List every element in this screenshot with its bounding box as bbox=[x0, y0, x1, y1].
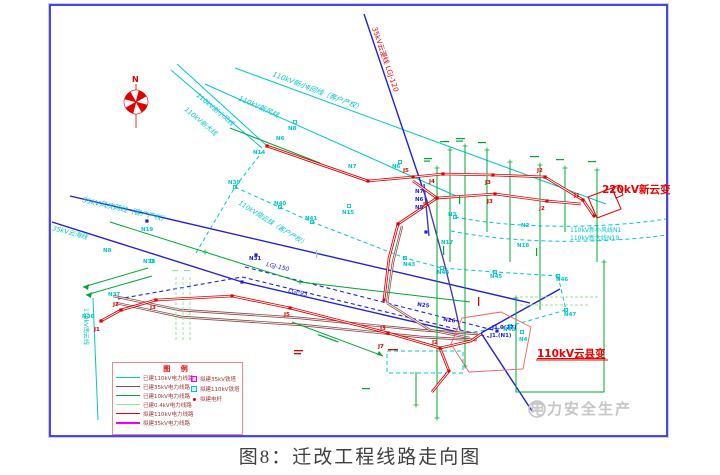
map-label: N6 bbox=[276, 136, 285, 142]
map-label: N40 bbox=[274, 201, 286, 207]
legend-symbol-row: 拟建110kV铁塔 bbox=[190, 384, 239, 394]
legend-symbol-label: 拟建35kV铁塔 bbox=[200, 375, 236, 383]
legend-line-swatch bbox=[116, 413, 140, 414]
map-label: J2 bbox=[112, 302, 119, 308]
map-label: J1 bbox=[93, 327, 100, 333]
tower-marker-sq-red bbox=[288, 306, 291, 309]
legend-symbol-square bbox=[191, 376, 197, 382]
tower-marker-sq-red bbox=[386, 331, 389, 334]
map-label: N46 bbox=[556, 277, 568, 283]
legend-line-label: 拟建35kV电力线路 bbox=[143, 419, 190, 427]
map-label: N14 bbox=[253, 150, 265, 156]
map-label: N48 bbox=[503, 327, 515, 333]
legend-line-row: 已建0.4kV电力线路 bbox=[116, 400, 190, 409]
legend-line-swatch bbox=[116, 377, 140, 378]
map-label: N7 bbox=[415, 189, 424, 195]
map-label: N2 bbox=[521, 223, 530, 229]
legend-line-swatch bbox=[116, 395, 140, 396]
tower-marker-sq-red bbox=[441, 172, 444, 175]
legend-symbol-entries: 拟建35kV铁塔拟建110kV铁塔拟建电杆 bbox=[190, 373, 239, 427]
legend-line-row: 已建110kV电力线路 bbox=[116, 373, 190, 382]
map-label: 110kV新小风线N1 bbox=[570, 226, 622, 234]
tower-marker-dot-red bbox=[447, 369, 450, 372]
tower-marker-sq-red bbox=[543, 175, 546, 178]
map-label: N8 bbox=[103, 248, 112, 254]
legend-line-row: 已建35kV电力线路 bbox=[116, 382, 190, 391]
map-label: N31 bbox=[249, 256, 261, 262]
map-label: 220kV新云变 bbox=[602, 183, 671, 196]
legend-line-row: 拟建110kV电力线路 bbox=[116, 409, 190, 418]
tower-marker-sq-blue bbox=[145, 219, 148, 222]
map-label: N43 bbox=[403, 262, 415, 268]
legend-line-swatch bbox=[116, 404, 140, 405]
tower-marker-sq-red bbox=[491, 173, 494, 176]
map-label: J5 bbox=[402, 168, 409, 174]
legend-symbol-label: 拟建110kV铁塔 bbox=[200, 385, 239, 393]
tower-marker-sq-red bbox=[545, 199, 548, 202]
tower-marker-sq-red bbox=[435, 196, 438, 199]
legend-line-entries: 已建110kV电力线路已建35kV电力线路已建10kV电力线路已建0.4kV电力… bbox=[116, 373, 190, 427]
legend-symbol-label: 拟建电杆 bbox=[200, 395, 222, 403]
legend-box: 图 例 已建110kV电力线路已建35kV电力线路已建10kV电力线路已建0.4… bbox=[112, 362, 243, 435]
legend-symbol-row: 拟建电杆 bbox=[190, 394, 239, 404]
tower-marker-sq-red bbox=[99, 319, 102, 322]
map-label: N8 bbox=[288, 126, 297, 132]
map-label: N45 bbox=[490, 274, 502, 280]
map-label: J5 bbox=[283, 312, 290, 318]
map-label: J2 bbox=[431, 340, 438, 346]
map-label: N4 bbox=[519, 337, 528, 343]
map-label: N7 bbox=[348, 164, 357, 170]
map-label: J4 bbox=[428, 179, 435, 185]
figure-caption: 图8：迁改工程线路走向图 bbox=[0, 442, 720, 469]
tower-marker-sq-red bbox=[230, 294, 233, 297]
power-safety-logo-icon bbox=[526, 398, 548, 420]
legend-symbol-square bbox=[191, 386, 197, 392]
figure-page: N35kV云漫线 LGJ-120110kV新小Ⅱ回线（客户产权）110kV新风线… bbox=[0, 0, 720, 475]
legend-line-label: 拟建110kV电力线路 bbox=[143, 410, 193, 418]
legend-line-row: 已建10kV电力线路 bbox=[116, 391, 190, 400]
tower-marker-sq-red bbox=[265, 144, 268, 147]
map-label: 110kV新大线N19 bbox=[570, 234, 619, 242]
map-label: N15 bbox=[342, 210, 354, 216]
legend-line-label: 已建35kV电力线路 bbox=[143, 383, 190, 391]
tower-marker-sq-red bbox=[411, 175, 414, 178]
tower-marker-sq-red bbox=[366, 179, 369, 182]
tower-marker-sq-red bbox=[438, 346, 441, 349]
legend-line-row: 拟建35kV电力线路 bbox=[116, 418, 190, 427]
tower-marker-dot-red bbox=[592, 214, 595, 217]
map-label: N bbox=[132, 75, 139, 84]
map-label: N38 bbox=[143, 259, 155, 265]
map-label: N39 bbox=[228, 180, 240, 186]
legend-line-swatch bbox=[116, 422, 140, 424]
tower-marker-sq-blue bbox=[240, 280, 243, 283]
map-label: N37 bbox=[108, 292, 120, 298]
map-label: 110kV云县变 bbox=[537, 347, 606, 360]
legend-symbol-row: 拟建35kV铁塔 bbox=[190, 374, 239, 384]
map-label: J3 bbox=[379, 326, 386, 332]
map-label: N36 bbox=[82, 314, 94, 320]
tower-marker-sq-red bbox=[493, 192, 496, 195]
map-label: J3 bbox=[486, 199, 493, 205]
tower-marker-sq-blue bbox=[424, 230, 427, 233]
tower-marker-sq-red bbox=[154, 298, 157, 301]
legend-line-label: 已建0.4kV电力线路 bbox=[143, 401, 192, 409]
tower-marker-sq-red bbox=[581, 198, 584, 201]
legend-line-label: 已建10kV电力线路 bbox=[143, 392, 190, 400]
map-label: J4 bbox=[422, 202, 429, 208]
map-label: J2 bbox=[538, 206, 545, 212]
map-label: N17 bbox=[441, 240, 453, 246]
map-label: N19 bbox=[141, 227, 153, 233]
map-label: J3 bbox=[484, 180, 491, 186]
map-label: N6 bbox=[392, 164, 401, 170]
map-label: N3 bbox=[448, 212, 457, 218]
watermark: 电力安全生产 bbox=[526, 398, 632, 419]
map-label: N41 bbox=[305, 216, 317, 222]
map-label: N18 bbox=[517, 243, 529, 249]
map-label: J1.(N1) bbox=[489, 333, 512, 339]
tower-marker-sq-red bbox=[119, 308, 122, 311]
legend-title: 图 例 bbox=[116, 365, 239, 373]
tower-marker-dot-red bbox=[382, 298, 385, 301]
map-label: J2 bbox=[536, 168, 543, 174]
tower-marker-sq-red bbox=[396, 222, 399, 225]
map-label: N47 bbox=[564, 312, 576, 318]
map-label: J7 bbox=[377, 344, 384, 350]
map-label: J3 bbox=[149, 305, 156, 311]
legend-line-label: 已建110kV电力线路 bbox=[143, 374, 193, 382]
legend-line-swatch bbox=[116, 386, 140, 387]
map-label: J1 bbox=[573, 193, 580, 199]
legend-symbol-dot bbox=[193, 398, 196, 401]
map-label: N44 bbox=[437, 270, 449, 276]
